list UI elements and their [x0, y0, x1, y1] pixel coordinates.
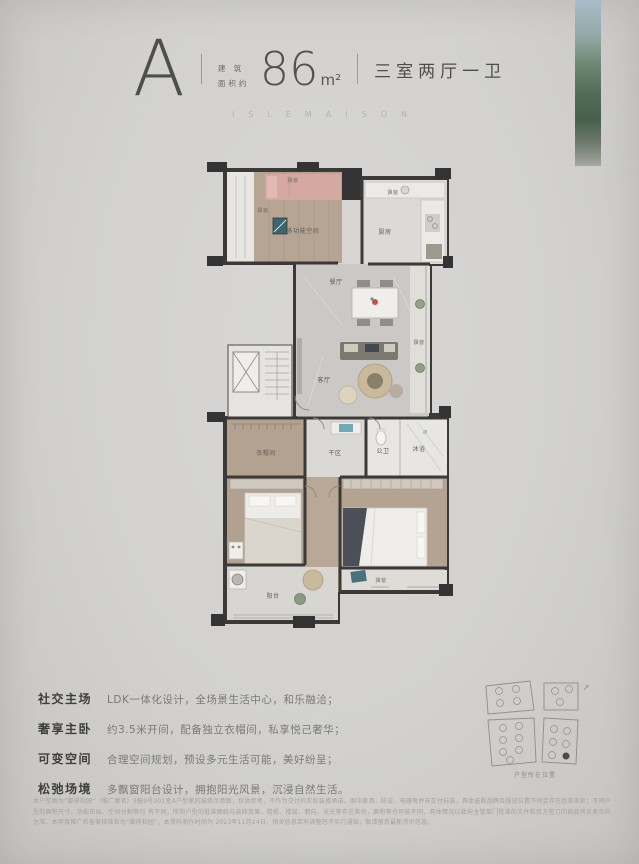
layout-text: 三室两厅一卫	[374, 57, 506, 82]
bay-window-right: 飘窗	[410, 266, 430, 413]
unit-letter: A	[133, 33, 185, 104]
room-label: 飘窗	[287, 177, 298, 184]
feature-row: 奢享主卧 约3.5米开间，配备独立衣帽间，私享悦己奢华；	[38, 720, 458, 737]
room-label: 厨房	[378, 228, 391, 236]
feature-title: 可变空间	[38, 750, 92, 767]
wardrobe-column	[227, 172, 254, 262]
room-balcony: 阳台	[227, 567, 338, 620]
toilet-icon	[376, 431, 386, 445]
fridge-icon	[426, 244, 442, 259]
sink-icon	[401, 186, 409, 194]
floorplan-poster: A 建 筑 面积约 86 m² 三室两厅一卫 ISLEMAISON	[0, 0, 639, 864]
feature-desc: 合理空间规划，预设多元生活可能，美好纷呈；	[107, 752, 338, 767]
series-name: ISLEMAISON	[0, 110, 639, 119]
site-plan: ↗ 户型所在位置	[478, 676, 598, 786]
area-prefix: 建 筑 面积约	[218, 63, 250, 89]
room-label: 飘窗	[375, 577, 386, 584]
stove-icon	[425, 214, 440, 232]
room-bathroom: 公卫 沐浴	[366, 418, 447, 477]
building-core	[228, 345, 292, 418]
room-kitchen: 飘窗 厨房	[362, 180, 447, 264]
current-unit-marker	[563, 753, 570, 760]
feature-row: 松弛场境 多飘窗阳台设计，拥抱阳光风景，沉浸自然生活。	[38, 780, 458, 797]
disclaimer-line: 2023年11月24日，相关信息若有调整恕不另行通知，敬请留意最新资讯信息。	[215, 819, 433, 826]
feature-desc: 约3.5米开间，配备独立衣帽间，私享悦己奢华；	[107, 722, 345, 737]
room-multifunction: 飘窗 飘窗 多功能空间	[227, 172, 342, 263]
table	[303, 570, 323, 590]
sitemap-caption: 户型所在位置	[514, 771, 556, 779]
room-dry-area: 干区	[305, 418, 366, 477]
area-unit: m²	[320, 71, 341, 89]
room-label: 飘窗	[387, 189, 398, 196]
room-label: 餐厅	[329, 278, 342, 286]
cabinet	[229, 542, 243, 559]
feature-desc: LDK一体化设计，全场景生活中心，和乐融洽；	[107, 692, 338, 707]
room-label: 阳台	[266, 592, 279, 600]
washbasin-icon	[339, 424, 353, 432]
header-divider-left	[201, 54, 202, 84]
coffee-table	[367, 373, 383, 389]
plant-icon	[416, 364, 425, 373]
feature-row: 社交主场 LDK一体化设计，全场景生活中心，和乐融洽；	[38, 690, 458, 707]
room-label: 飘窗	[257, 207, 268, 214]
feature-row: 可变空间 合理空间规划，预设多元生活可能，美好纷呈；	[38, 750, 458, 767]
cushion	[350, 570, 366, 583]
feature-title: 社交主场	[38, 690, 92, 707]
room-label: 公卫	[376, 448, 389, 455]
room-closet: 衣帽间	[227, 418, 305, 477]
room-living-dining: 餐厅 客厅	[296, 264, 429, 416]
room-bedroom-master	[340, 477, 447, 568]
compass-icon: ↗	[583, 683, 590, 692]
plant-icon	[416, 300, 425, 309]
header: A 建 筑 面积约 86 m² 三室两厅一卫	[0, 34, 639, 104]
room-label: 衣帽间	[256, 449, 276, 457]
room-label: 多功能空间	[287, 227, 320, 235]
bay-window-bottom: 飘窗	[340, 570, 447, 590]
armchair	[339, 386, 357, 404]
feature-desc: 多飘窗阳台设计，拥抱阳光风景，沉浸自然生活。	[107, 782, 349, 797]
disclaimer: 本户型图为“御璟和园”（推广案名）3幢9号301室A户型家的装修示意图，仅供参考…	[33, 797, 611, 829]
tv-console	[297, 338, 302, 394]
area-group: 建 筑 面积约 86 m²	[218, 49, 341, 89]
room-label: 飘窗	[413, 339, 424, 346]
plant-icon	[295, 594, 306, 605]
floor-plan: 飘窗 飘窗 多功能空间 飘窗 厨房	[193, 156, 465, 648]
area-prefix-top: 建 筑	[218, 63, 250, 74]
area-value: 86	[260, 49, 319, 89]
header-divider-right	[357, 54, 358, 84]
duct-shaft	[342, 168, 362, 200]
feature-list: 社交主场 LDK一体化设计，全场景生活中心，和乐融洽； 奢享主卧 约3.5米开间…	[38, 690, 458, 810]
feature-title: 松弛场境	[38, 780, 92, 797]
area-prefix-bottom: 面积约	[218, 78, 250, 89]
room-bedroom-left	[227, 477, 305, 566]
room-label: 干区	[328, 450, 341, 457]
room-label: 客厅	[317, 376, 330, 384]
feature-title: 奢享主卧	[38, 720, 92, 737]
area-number: 86 m²	[260, 49, 341, 89]
room-label: 沐浴	[412, 445, 425, 453]
